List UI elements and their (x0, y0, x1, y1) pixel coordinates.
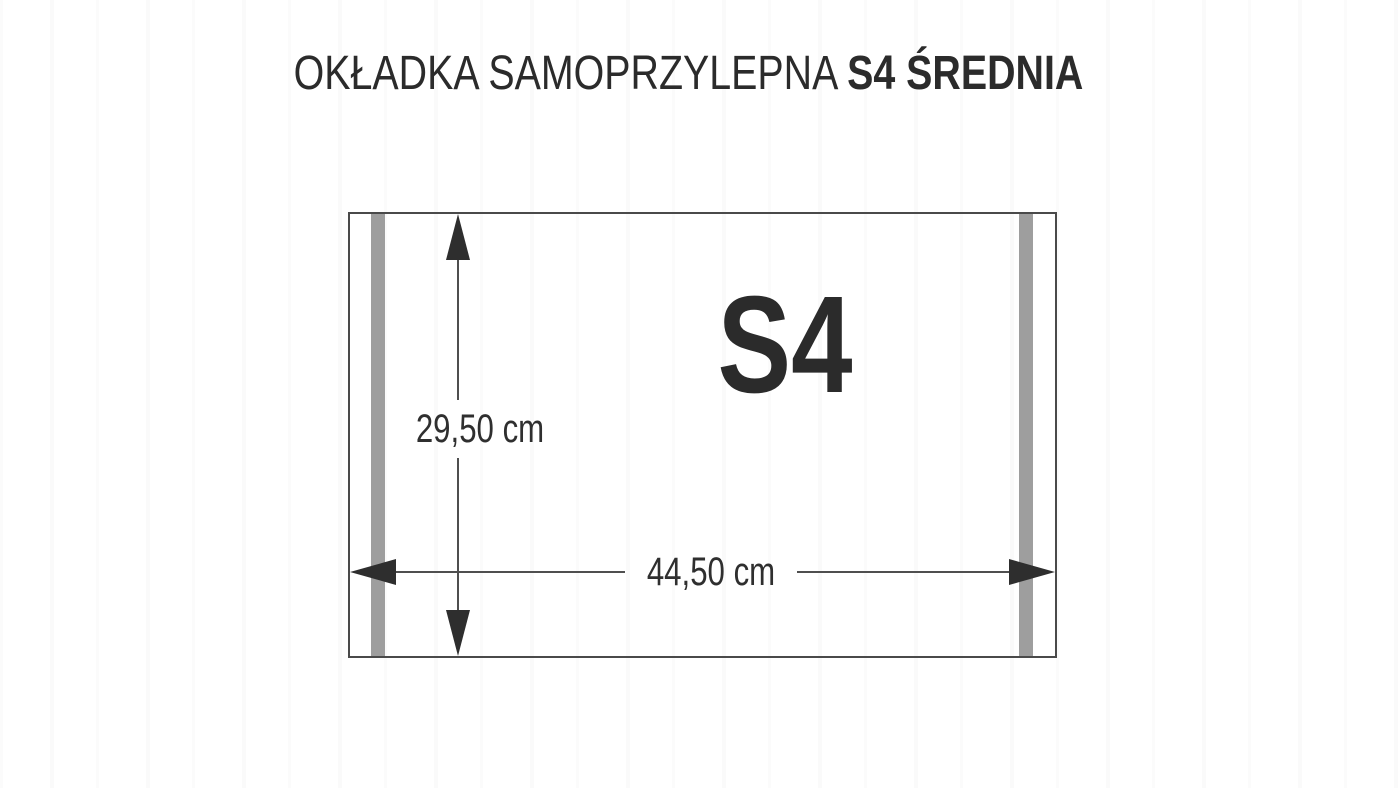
adhesive-stripe-left (371, 214, 385, 656)
cover-outline: S4 29,50 cm 44,50 cm (348, 212, 1057, 658)
width-dimension-line-left (396, 571, 625, 573)
size-label: S4 (701, 276, 870, 414)
size-label-text: S4 (717, 276, 852, 414)
width-dimension-label: 44,50 cm (647, 552, 775, 592)
height-dimension-line-bottom (457, 458, 459, 612)
height-dimension-label: 29,50 cm (416, 409, 544, 449)
arrow-up-icon (446, 214, 470, 260)
arrow-right-icon (1009, 559, 1055, 585)
title-bold: S4 ŚREDNIA (847, 47, 1083, 100)
width-dimension-line-right (797, 571, 1009, 573)
page-title: OKŁADKA SAMOPRZYLEPNA S4 ŚREDNIA (0, 46, 1376, 101)
adhesive-stripe-right (1019, 214, 1033, 656)
arrow-left-icon (350, 559, 396, 585)
page-title-text: OKŁADKA SAMOPRZYLEPNA S4 ŚREDNIA (293, 46, 1083, 101)
title-regular: OKŁADKA SAMOPRZYLEPNA (293, 47, 846, 100)
page-background: OKŁADKA SAMOPRZYLEPNA S4 ŚREDNIA S4 29,5… (0, 0, 1400, 788)
arrow-down-icon (446, 610, 470, 656)
height-dimension-line-top (457, 260, 459, 400)
